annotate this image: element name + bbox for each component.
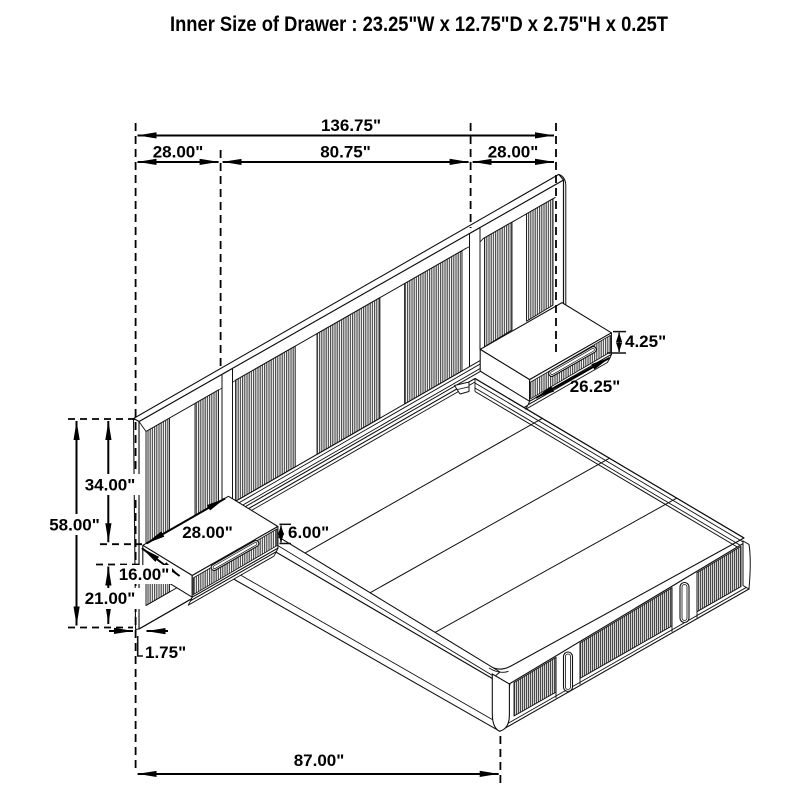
svg-text:87.00": 87.00"	[294, 751, 345, 770]
svg-text:21.00": 21.00"	[85, 589, 136, 608]
svg-text:16.00": 16.00"	[119, 565, 170, 584]
svg-text:4.25": 4.25"	[625, 332, 666, 351]
svg-text:26.25": 26.25"	[570, 377, 621, 396]
svg-text:80.75": 80.75"	[320, 143, 371, 162]
svg-text:34.00": 34.00"	[85, 476, 136, 495]
svg-text:Inner Size of Drawer : 23.25"W: Inner Size of Drawer : 23.25"W x 12.75"D…	[170, 13, 668, 36]
svg-text:28.00": 28.00"	[182, 523, 233, 542]
svg-text:28.00": 28.00"	[153, 143, 204, 162]
svg-text:28.00": 28.00"	[488, 143, 539, 162]
svg-text:6.00": 6.00"	[288, 523, 329, 542]
svg-text:1.75": 1.75"	[145, 643, 186, 662]
svg-text:58.00": 58.00"	[49, 516, 100, 535]
svg-text:136.75": 136.75"	[321, 116, 381, 135]
